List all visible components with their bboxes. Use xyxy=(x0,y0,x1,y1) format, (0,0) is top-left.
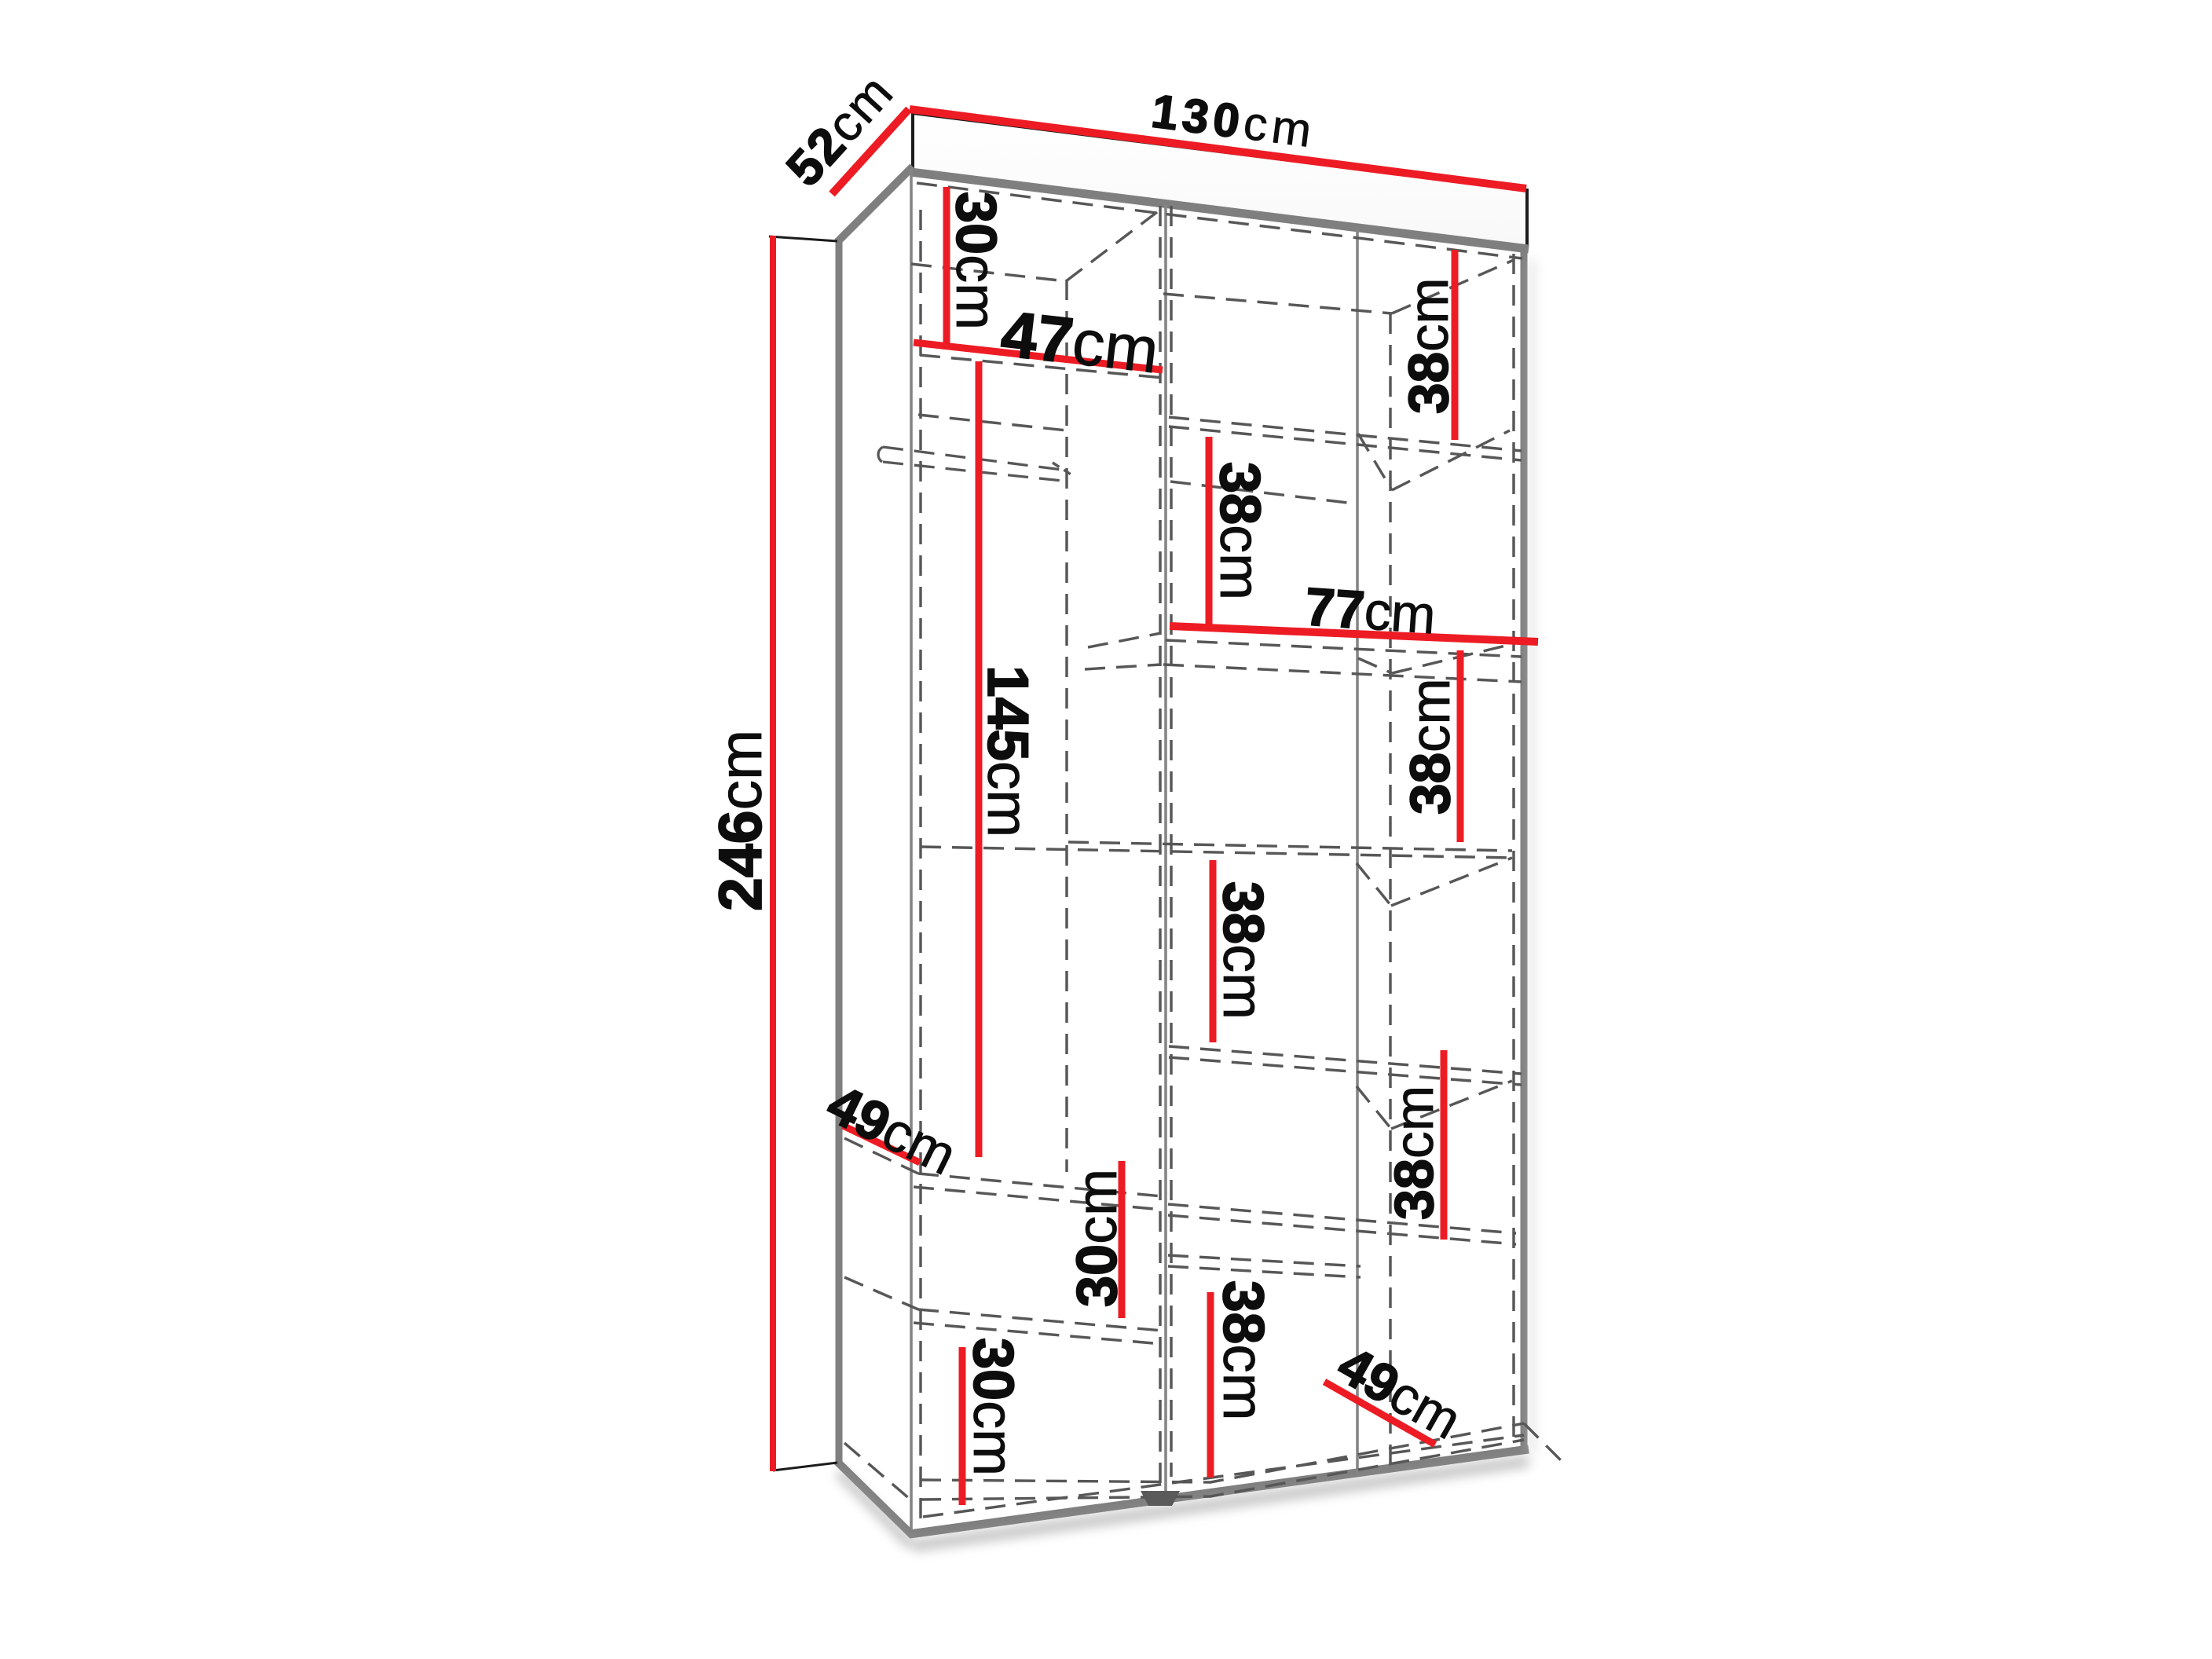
svg-text:38cm: 38cm xyxy=(1383,1086,1445,1220)
svg-text:38cm: 38cm xyxy=(1211,881,1274,1020)
svg-text:30cm: 30cm xyxy=(961,1338,1024,1476)
svg-text:38cm: 38cm xyxy=(1208,462,1271,600)
svg-text:30cm: 30cm xyxy=(1066,1169,1129,1307)
svg-text:38cm: 38cm xyxy=(1398,277,1460,414)
svg-text:246cm: 246cm xyxy=(707,730,775,911)
svg-text:38cm: 38cm xyxy=(1211,1280,1275,1421)
svg-text:145cm: 145cm xyxy=(976,665,1039,837)
svg-text:30cm: 30cm xyxy=(944,192,1007,330)
svg-text:77cm: 77cm xyxy=(1303,577,1437,645)
svg-text:38cm: 38cm xyxy=(1400,678,1462,815)
